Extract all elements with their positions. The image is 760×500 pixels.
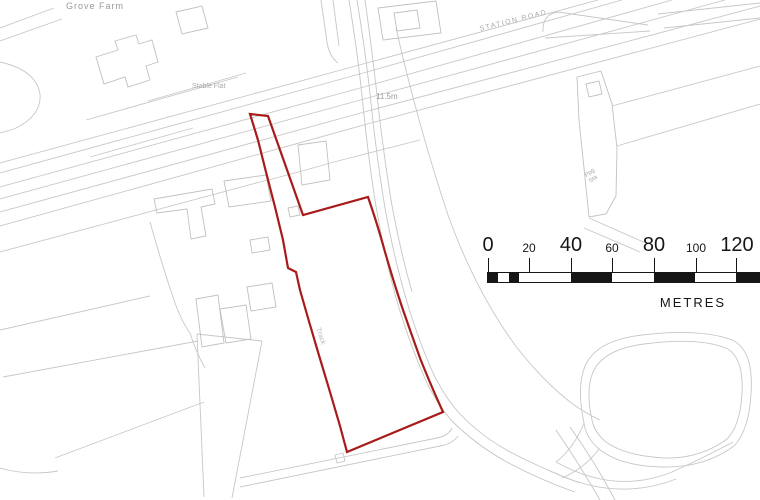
scale-bar-block bbox=[488, 273, 498, 282]
scale-bar-block bbox=[509, 273, 519, 282]
scale-tick bbox=[529, 258, 530, 272]
scale-tick bbox=[612, 258, 613, 272]
scale-tick bbox=[736, 258, 737, 272]
scale-bar-strip bbox=[487, 272, 760, 283]
scale-tick-label-20: 20 bbox=[522, 241, 535, 255]
spot-height-label: 11.5m bbox=[376, 92, 398, 101]
scale-tick-label-60: 60 bbox=[605, 241, 618, 255]
farm-name-label: Grove Farm bbox=[66, 1, 124, 11]
scale-bar-block bbox=[571, 273, 612, 282]
scale-tick-label-40: 40 bbox=[560, 234, 582, 257]
scale-unit-label: METRES bbox=[650, 295, 736, 310]
scale-tick bbox=[571, 258, 572, 272]
scale-tick-label-100: 100 bbox=[686, 241, 706, 255]
site-boundary bbox=[250, 114, 443, 452]
scale-bar-block bbox=[736, 273, 760, 282]
site-plan-map: Grove Farm Stable Flat STATION ROAD 11.5… bbox=[0, 0, 760, 500]
scale-tick-label-80: 80 bbox=[643, 234, 665, 257]
pond-outline bbox=[548, 332, 751, 489]
scale-tick-label-0: 0 bbox=[482, 234, 493, 257]
scale-tick bbox=[696, 258, 697, 272]
scale-tick bbox=[654, 258, 655, 272]
scale-tick-label-120: 120 bbox=[720, 234, 753, 257]
stable-flat-label: Stable Flat bbox=[192, 83, 225, 90]
scale-tick bbox=[488, 258, 489, 272]
scale-bar-block bbox=[654, 273, 695, 282]
